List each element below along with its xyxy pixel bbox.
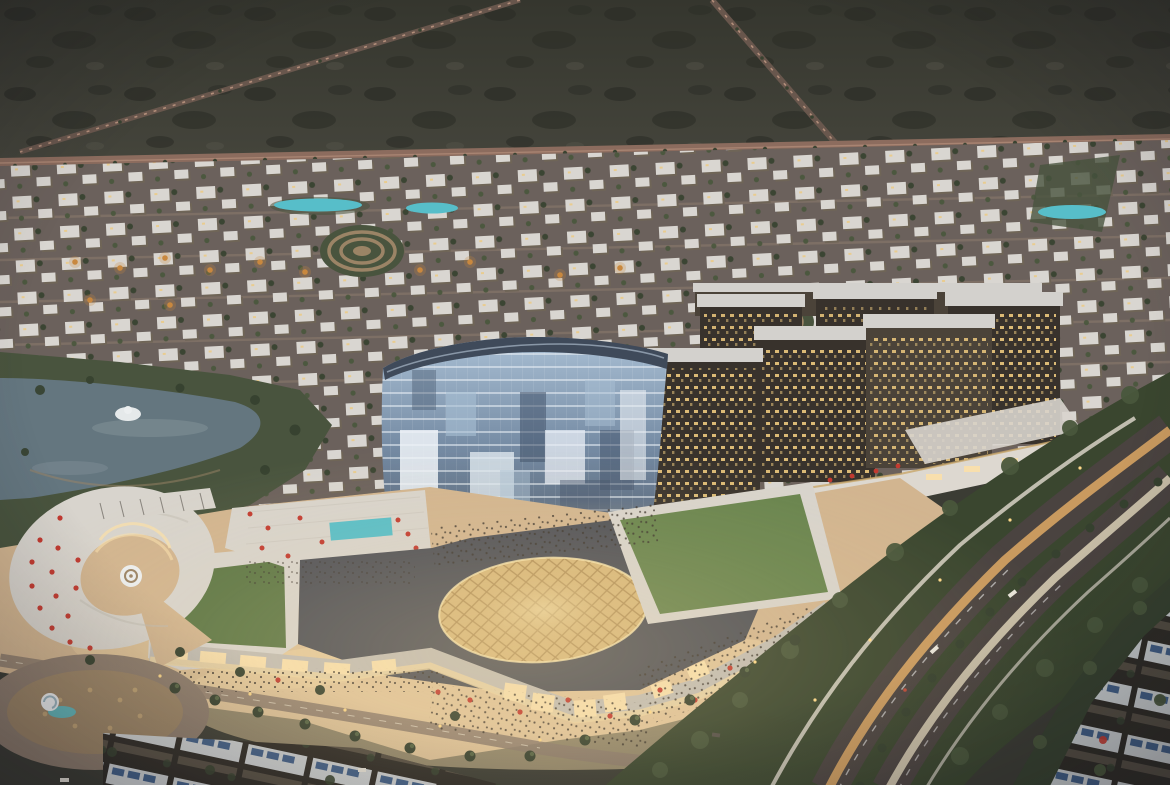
- masterplan-illustration: [0, 0, 1170, 785]
- aerial-render-image: [0, 0, 1170, 785]
- atmosphere-overlays: [0, 0, 1170, 785]
